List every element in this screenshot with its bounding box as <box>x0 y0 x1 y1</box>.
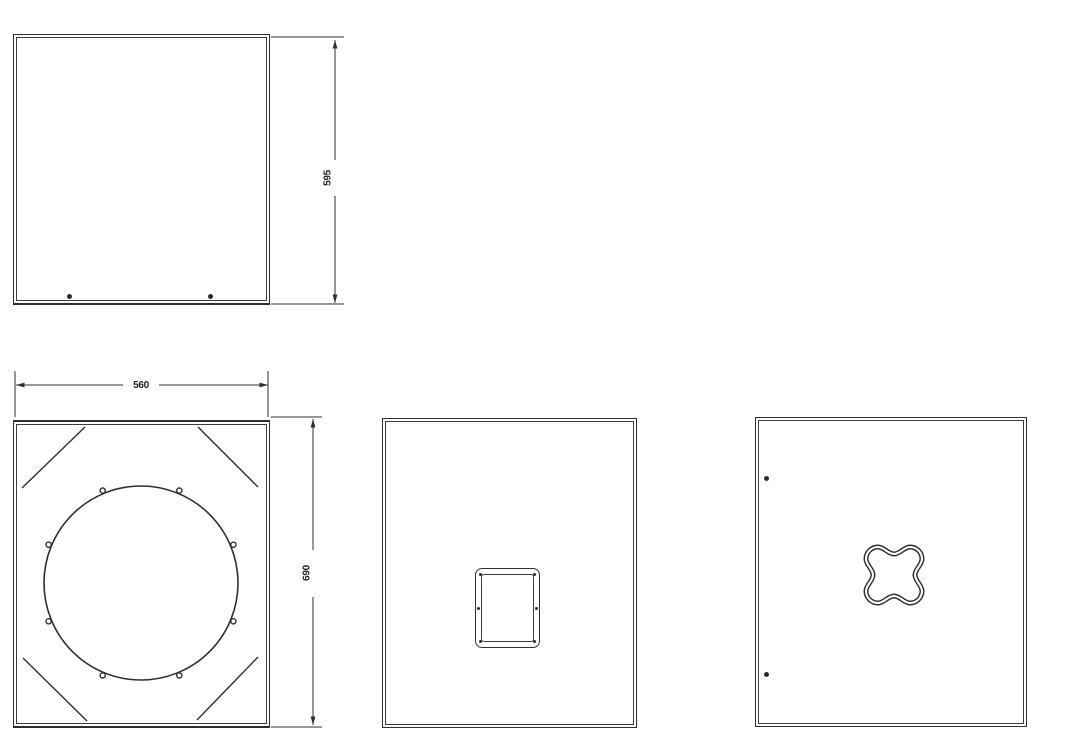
view-side-top-panel-line <box>16 37 267 301</box>
connector-plate-inner-line <box>481 574 534 642</box>
arrowhead-left <box>16 383 25 388</box>
view-side-right-panel-line <box>758 420 1024 724</box>
dimension-depth: 595 <box>271 37 344 304</box>
plate-corner-screw-dot <box>479 573 482 576</box>
view-front-panel-line <box>16 424 267 724</box>
dimension-width-label: 560 <box>133 380 150 391</box>
view-front <box>13 420 270 728</box>
plate-mid-screw-dot <box>477 607 480 610</box>
view-side-top <box>13 34 270 305</box>
arrowhead-right <box>260 383 269 388</box>
screw-dot <box>208 294 213 299</box>
dimension-height: 690 <box>271 417 322 727</box>
view-side-right <box>755 417 1027 727</box>
arrowhead-down <box>311 717 316 726</box>
plate-mid-screw-dot <box>535 607 538 610</box>
plate-corner-screw-dot <box>479 640 482 643</box>
screw-dot <box>67 294 72 299</box>
technical-drawing-canvas: 595 560 690 <box>0 0 1071 751</box>
arrowhead-up <box>311 419 316 428</box>
dimension-height-label: 690 <box>302 564 313 581</box>
arrowhead-down <box>333 295 338 304</box>
screw-dot <box>764 476 769 481</box>
arrowhead-up <box>333 40 338 49</box>
screw-dot <box>764 672 769 677</box>
plate-corner-screw-dot <box>533 640 536 643</box>
dimension-width: 560 <box>15 371 268 417</box>
dimension-depth-label: 595 <box>323 169 334 186</box>
